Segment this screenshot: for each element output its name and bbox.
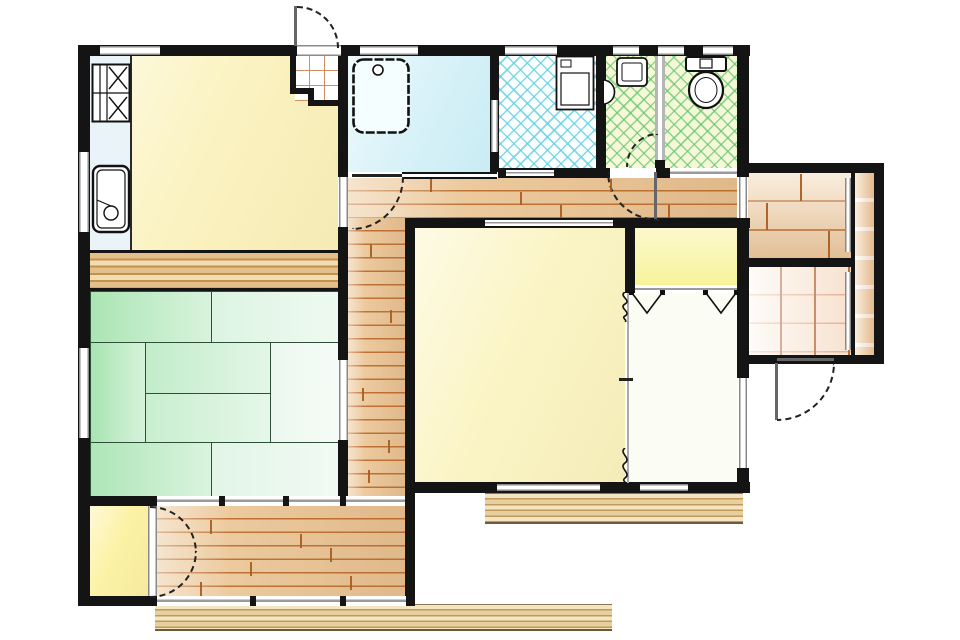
genkan-step (290, 56, 296, 92)
wall-tick (250, 596, 256, 606)
plank-joint (800, 174, 802, 201)
wall-tick (340, 596, 346, 606)
plank-joint (200, 582, 202, 596)
wall-segment (338, 45, 348, 177)
sliding-door-track (739, 177, 747, 223)
wall-thin (90, 250, 338, 253)
tatami-mat (145, 342, 272, 395)
door-closed-line (777, 358, 834, 361)
plank-joint (370, 244, 372, 257)
wall-left (78, 45, 90, 606)
washing-machine-fixture (555, 55, 595, 111)
toilet-fixture (683, 55, 729, 111)
sliding-door-track (845, 178, 851, 252)
wall-tick (340, 496, 346, 506)
bathtub-fixture (351, 57, 411, 135)
sliding-door-track (157, 496, 405, 506)
tatami-mat (211, 291, 347, 344)
plank-joint (430, 179, 432, 192)
tatami-mat (270, 342, 347, 444)
deck-side (155, 604, 612, 631)
wall-ext-right (874, 163, 884, 364)
window (497, 484, 600, 491)
side-veranda (855, 173, 874, 355)
wall-ext-top (737, 163, 884, 173)
room-storage (90, 506, 148, 596)
window (505, 46, 557, 55)
window (79, 152, 89, 232)
plank-joint (250, 562, 252, 576)
wall-segment (405, 496, 415, 606)
wall-segment (338, 227, 348, 360)
wall-veranda-sep (851, 171, 855, 364)
plank-joint (388, 440, 390, 453)
partition-mid-tick (619, 378, 633, 381)
room-closet (635, 228, 737, 285)
plank-joint (210, 520, 212, 534)
window (739, 378, 747, 468)
sliding-door-track (506, 170, 554, 176)
window (613, 46, 639, 55)
room-main (415, 228, 625, 482)
room-second (630, 293, 737, 482)
tatami-mat (90, 342, 147, 444)
door-swing-entrance (297, 6, 339, 48)
corner-basin-fixture (604, 79, 620, 105)
tatami-mat (90, 442, 213, 498)
wall-closet-left (625, 218, 635, 293)
sliding-door-track (339, 360, 348, 440)
bifold-closet-icon (629, 290, 665, 316)
wall-segment (78, 496, 157, 506)
wall-segment (596, 56, 606, 168)
wall-ext-mid (748, 258, 851, 267)
deck-front (485, 493, 743, 524)
hallway-upper (348, 178, 737, 218)
wall-tick (219, 496, 225, 506)
plank-joint (390, 310, 392, 323)
plank-joint (668, 205, 670, 218)
plank-joint (828, 231, 830, 258)
bifold-closet-icon (703, 290, 739, 316)
wall-segment (78, 596, 158, 606)
plank-joint (368, 470, 370, 483)
room-oshiire-closet (90, 253, 338, 288)
wall-thin (90, 288, 338, 291)
plank-joint (330, 548, 332, 562)
tatami-mat (211, 442, 347, 498)
wall-tick (283, 496, 289, 506)
tatami-mat (145, 393, 272, 444)
sliding-door-track (845, 272, 851, 350)
hallway-side (348, 218, 405, 496)
room-entry-genkan (295, 56, 338, 101)
sliding-door-track (339, 177, 348, 227)
tatami-mat (90, 291, 213, 344)
window (640, 484, 688, 491)
plank-joint (350, 576, 352, 590)
kitchen-sink-fixture (91, 164, 131, 234)
door-swing-rear-exit (777, 363, 835, 421)
room-rear-lower (748, 267, 851, 355)
plank-joint (520, 192, 522, 205)
sliding-window-track (157, 596, 406, 606)
wall-thin (402, 172, 497, 179)
window (79, 348, 89, 438)
squiggle-open-wall-icon (616, 448, 634, 484)
plank-joint (610, 179, 612, 192)
gas-stove-fixture (91, 63, 131, 123)
wall-mainroom-left (405, 218, 415, 496)
window (100, 46, 160, 55)
sliding-door-track (491, 100, 498, 152)
plank-joint (300, 534, 302, 548)
sliding-door-track (670, 168, 738, 178)
window (703, 46, 733, 55)
sliding-door-track (485, 220, 613, 226)
wall-right-main (737, 45, 749, 177)
plank-joint (362, 388, 364, 401)
window (658, 46, 684, 55)
floor-plan (0, 0, 960, 640)
window (360, 46, 418, 55)
plank-joint (560, 205, 562, 218)
genkan-step (308, 100, 348, 106)
plank-joint (766, 203, 768, 230)
wash-basin-fixture (615, 56, 649, 88)
